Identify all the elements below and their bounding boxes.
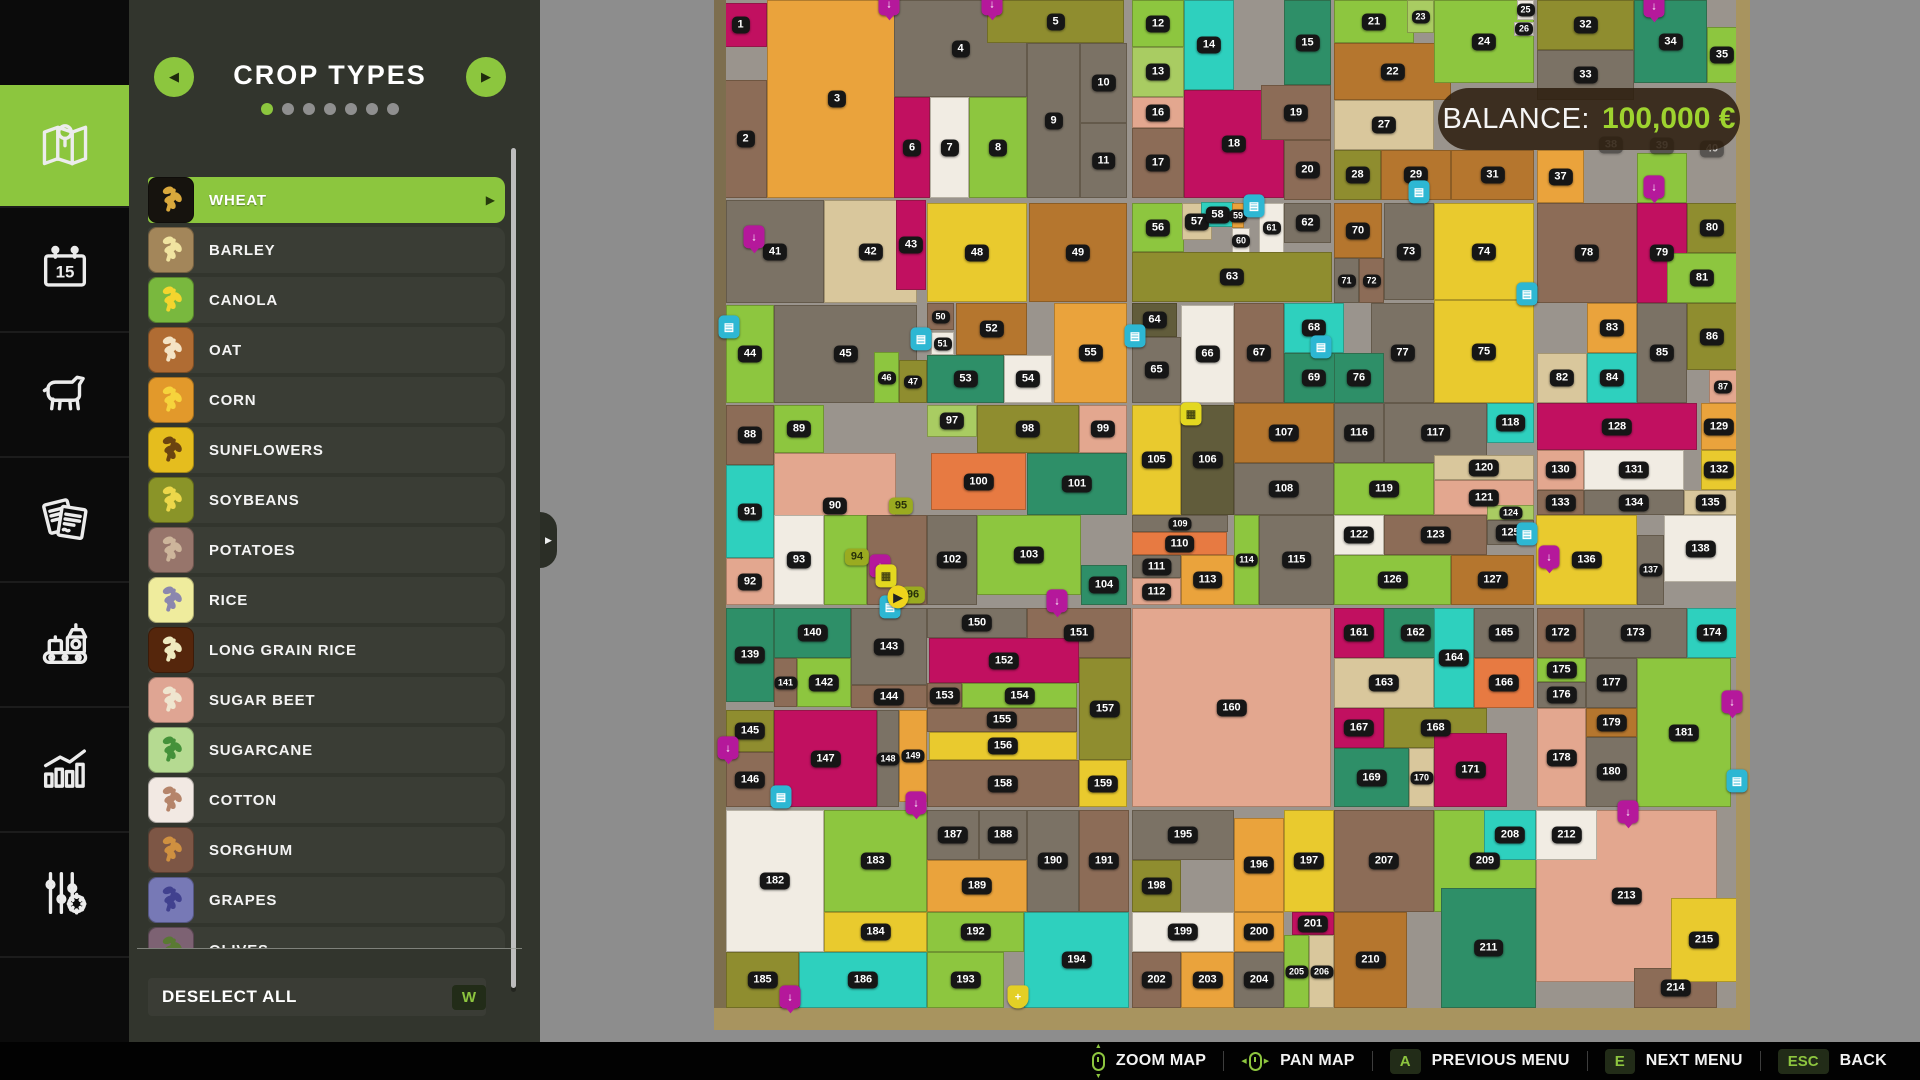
- seed-point-icon[interactable]: ↓: [744, 225, 765, 248]
- page-dot-2: [282, 103, 294, 115]
- field-number-badge: 134: [1619, 494, 1649, 511]
- field-number-badge: 147: [810, 750, 840, 767]
- field-number-badge: 62: [1295, 215, 1319, 232]
- nav-tab-statistics[interactable]: [0, 710, 129, 833]
- field-number-badge: 93: [787, 552, 811, 569]
- crop-row-sugar-beet[interactable]: SUGAR BEET: [148, 677, 505, 723]
- field-number-badge: 189: [962, 878, 992, 895]
- field-number-badge: 124: [1499, 506, 1522, 519]
- production-point-icon[interactable]: ▤: [1311, 335, 1332, 358]
- crop-icon: [148, 627, 194, 673]
- field-number-badge: 195: [1168, 827, 1198, 844]
- field-number-badge: 104: [1089, 577, 1119, 594]
- crop-list: WHEAT▶BARLEYCANOLAOATCORNSUNFLOWERSSOYBE…: [148, 177, 505, 948]
- production-point-icon[interactable]: ▤: [1125, 324, 1146, 347]
- map-icon: [36, 114, 94, 177]
- field-number-badge: 99: [1091, 421, 1115, 438]
- field-number-badge: 213: [1611, 888, 1641, 905]
- prev-page-button[interactable]: ◀: [154, 57, 194, 97]
- field-number-badge: 23: [1411, 10, 1429, 23]
- field-number-badge: 153: [929, 687, 959, 704]
- nav-tab-production[interactable]: [0, 585, 129, 708]
- field-number-badge: 35: [1710, 47, 1734, 64]
- field-number-badge: 79: [1650, 245, 1674, 262]
- field-number-badge: 167: [1344, 720, 1374, 737]
- page-dot-6: [366, 103, 378, 115]
- crop-icon: [148, 527, 194, 573]
- production-point-icon[interactable]: ▤: [911, 327, 932, 350]
- field-number-badge: 184: [860, 924, 890, 941]
- field-number-badge: 111: [1142, 558, 1171, 575]
- field-number-badge: 166: [1489, 675, 1519, 692]
- hotkey-label: PAN MAP: [1280, 1052, 1355, 1070]
- map-edge-right: [1736, 0, 1750, 1030]
- field-number-badge: 201: [1298, 915, 1328, 932]
- field-number-badge: 44: [738, 346, 762, 363]
- hotkey-back[interactable]: ESCBACK: [1761, 1049, 1904, 1074]
- field-number-badge: 181: [1669, 724, 1699, 741]
- field-number-badge: 27: [1372, 117, 1396, 134]
- deselect-key-badge: W: [452, 985, 486, 1010]
- field-number-badge: 186: [848, 972, 878, 989]
- field-number-badge: 74: [1472, 243, 1496, 260]
- production-point-icon[interactable]: ▤: [1409, 180, 1430, 203]
- map-edge-bottom: [714, 1008, 1750, 1030]
- page-dot-7: [387, 103, 399, 115]
- nav-tab-animals[interactable]: [0, 335, 129, 458]
- balance-value: 100,000 €: [1602, 102, 1735, 136]
- crop-label: WHEAT: [194, 192, 267, 209]
- field-number-badge: 120: [1469, 459, 1499, 476]
- field-number-badge: 137: [1639, 564, 1662, 577]
- field-number-badge: 116: [1344, 425, 1374, 442]
- field-number-badge-owned: 95: [889, 498, 913, 515]
- field-number-badge: 135: [1695, 494, 1725, 511]
- panel-divider: [137, 948, 522, 949]
- field-number-badge: 67: [1247, 345, 1271, 362]
- field-number-badge: 52: [979, 321, 1003, 338]
- field-number-badge: 140: [797, 625, 827, 642]
- crop-label: BARLEY: [194, 242, 275, 259]
- field-number-badge: 103: [1014, 547, 1044, 564]
- key-badge-a: A: [1390, 1049, 1421, 1074]
- field-number-badge: 53: [953, 371, 977, 388]
- field-number-badge: 1: [731, 17, 749, 34]
- field-number-badge: 123: [1420, 527, 1450, 544]
- hotkey-label: PREVIOUS MENU: [1432, 1052, 1570, 1070]
- field-number-badge: 25: [1516, 4, 1534, 17]
- field-number-badge: 156: [988, 738, 1018, 755]
- hotkey-label: NEXT MENU: [1646, 1052, 1743, 1070]
- field-number-badge: 6: [903, 139, 921, 156]
- field-number-badge: 92: [738, 573, 762, 590]
- crop-icon: [148, 827, 194, 873]
- page-dot-1: [261, 103, 273, 115]
- field-number-badge: 152: [989, 652, 1019, 669]
- field-number-badge: 174: [1697, 625, 1727, 642]
- field-number-badge: 196: [1244, 857, 1274, 874]
- field-number-badge: 32: [1573, 17, 1597, 34]
- field-number-badge: 141: [774, 676, 797, 689]
- keybind-icon[interactable]: ▦: [876, 564, 897, 587]
- field-number-badge: 122: [1344, 527, 1374, 544]
- field-number-badge: 49: [1066, 244, 1090, 261]
- field-number-badge: 4: [951, 40, 969, 57]
- crop-row-rice[interactable]: RICE: [148, 577, 505, 623]
- crop-row-barley[interactable]: BARLEY: [148, 227, 505, 273]
- seed-point-icon[interactable]: ↓: [1618, 800, 1639, 823]
- bottom-hotkey-bar: ▲▼ZOOM MAP◀▶PAN MAPAPREVIOUS MENUENEXT M…: [0, 1042, 1920, 1080]
- field-number-badge: 144: [874, 688, 904, 705]
- hotkey-pan-map[interactable]: ◀▶PAN MAP: [1224, 1052, 1371, 1071]
- field-number-badge: 48: [965, 244, 989, 261]
- next-page-button[interactable]: ▶: [466, 57, 506, 97]
- crop-row-oat[interactable]: OAT: [148, 327, 505, 373]
- field-number-badge: 14: [1197, 37, 1221, 54]
- seed-point-icon[interactable]: ↓: [780, 985, 801, 1008]
- field-number-badge: 9: [1044, 112, 1062, 129]
- field-number-badge: 215: [1689, 932, 1719, 949]
- field-number-badge: 82: [1550, 370, 1574, 387]
- field-number-badge: 73: [1397, 243, 1421, 260]
- crop-icon: [148, 327, 194, 373]
- panel-collapse-button[interactable]: ▶: [540, 512, 557, 568]
- seed-point-icon[interactable]: ↓: [1722, 690, 1743, 713]
- deselect-all-label: DESELECT ALL: [162, 987, 297, 1007]
- crop-row-potatoes[interactable]: POTATOES: [148, 527, 505, 573]
- field-number-badge: 54: [1016, 371, 1040, 388]
- field-number-badge: 162: [1400, 625, 1430, 642]
- hotkey-next-menu[interactable]: ENEXT MENU: [1588, 1049, 1760, 1074]
- field-number-badge: 193: [950, 972, 980, 989]
- crop-row-olives[interactable]: OLIVES: [148, 927, 505, 948]
- crop-icon: [148, 777, 194, 823]
- field-number-badge: 110: [1165, 535, 1195, 552]
- field-number-badge: 143: [874, 638, 904, 655]
- field-number-badge: 149: [901, 750, 924, 763]
- hotkey-previous-menu[interactable]: APREVIOUS MENU: [1373, 1049, 1587, 1074]
- field-number-badge: 19: [1284, 104, 1308, 121]
- field-number-badge: 108: [1269, 481, 1299, 498]
- field-number-badge: 118: [1496, 415, 1526, 432]
- production-point-icon[interactable]: ▤: [1517, 282, 1538, 305]
- nav-tab-contracts[interactable]: [0, 460, 129, 583]
- field-number-badge: 151: [1064, 625, 1094, 642]
- field-number-badge: 7: [940, 139, 958, 156]
- field-number-badge: 210: [1355, 952, 1385, 969]
- field-number-badge: 209: [1470, 853, 1500, 870]
- field-number-badge: 22: [1380, 63, 1404, 80]
- crop-icon: [148, 277, 194, 323]
- field-number-badge: 107: [1269, 425, 1299, 442]
- field-number-badge: 177: [1596, 675, 1626, 692]
- seed-point-icon[interactable]: ↓: [1539, 545, 1560, 568]
- field-number-badge: 114: [1235, 554, 1258, 567]
- field-number-badge: 136: [1571, 552, 1601, 569]
- field-number-badge: 78: [1575, 245, 1599, 262]
- field-number-badge: 11: [1092, 152, 1116, 169]
- field-number-badge: 72: [1362, 274, 1380, 287]
- crop-label: CORN: [194, 392, 256, 409]
- crop-types-panel: ◀ CROP TYPES ▶ WHEAT▶BARLEYCANOLAOATCORN…: [129, 0, 540, 1042]
- crop-row-canola[interactable]: CANOLA: [148, 277, 505, 323]
- field-number-badge: 83: [1600, 320, 1624, 337]
- field-number-badge: 109: [1168, 517, 1191, 530]
- field-number-badge: 202: [1141, 972, 1171, 989]
- production-point-icon[interactable]: ▤: [1517, 522, 1538, 545]
- crop-row-sunflowers[interactable]: SUNFLOWERS: [148, 427, 505, 473]
- crop-label: COTTON: [194, 792, 277, 809]
- field-number-badge: 13: [1146, 64, 1170, 81]
- page-dot-3: [303, 103, 315, 115]
- field-number-badge: 199: [1168, 924, 1198, 941]
- field-number-badge: 20: [1295, 162, 1319, 179]
- field-number-badge: 81: [1690, 270, 1714, 287]
- field-number-badge: 56: [1146, 219, 1170, 236]
- field-number-badge: 69: [1302, 370, 1326, 387]
- field-number-badge: 145: [735, 723, 765, 740]
- field-number-badge: 64: [1142, 312, 1166, 329]
- field-number-badge: 80: [1700, 220, 1724, 237]
- stats-icon: [36, 739, 94, 802]
- field-number-badge: 65: [1144, 362, 1168, 379]
- field-number-badge: 198: [1141, 878, 1171, 895]
- field-number-badge: 98: [1016, 421, 1040, 438]
- field-number-badge: 190: [1038, 853, 1068, 870]
- contracts-icon: [36, 489, 94, 552]
- page-dot-5: [345, 103, 357, 115]
- field-number-badge: 182: [760, 873, 790, 890]
- crop-row-wheat[interactable]: WHEAT▶: [148, 177, 505, 223]
- crop-icon: [148, 927, 194, 948]
- nav-tab-calendar[interactable]: 15: [0, 210, 129, 333]
- field-number-badge: 165: [1489, 625, 1519, 642]
- player-marker-icon[interactable]: ▶: [888, 585, 909, 608]
- production-point-icon[interactable]: ▤: [1727, 769, 1748, 792]
- field-number-badge: 127: [1477, 572, 1507, 589]
- keybind-icon[interactable]: ▦: [1181, 402, 1202, 425]
- field-number-badge: 205: [1285, 965, 1308, 978]
- field-number-badge: 128: [1602, 418, 1632, 435]
- mouse-pan-icon: ◀▶: [1241, 1052, 1269, 1071]
- seed-point-icon[interactable]: ↓: [718, 736, 739, 759]
- calendar-icon: 15: [36, 239, 94, 302]
- production-icon: [36, 614, 94, 677]
- field-number-badge: 180: [1596, 764, 1626, 781]
- nav-tab-settings[interactable]: [0, 835, 129, 958]
- hotkey-label: ZOOM MAP: [1116, 1052, 1206, 1070]
- field-number-badge: 131: [1619, 462, 1649, 479]
- field-number-badge: 90: [823, 497, 847, 514]
- seed-point-icon[interactable]: ↓: [982, 0, 1003, 15]
- field-number-badge: 176: [1546, 687, 1576, 704]
- hotkey-zoom-map[interactable]: ▲▼ZOOM MAP: [1075, 1043, 1223, 1080]
- seed-point-icon[interactable]: ↓: [906, 791, 927, 814]
- field-number-badge: 115: [1282, 552, 1312, 569]
- crop-icon: [148, 177, 194, 223]
- field-number-badge: 63: [1220, 269, 1244, 286]
- field-number-badge: 183: [860, 853, 890, 870]
- crop-label: SUNFLOWERS: [194, 442, 324, 459]
- field-number-badge: 50: [931, 310, 949, 323]
- field-number-badge: 86: [1700, 328, 1724, 345]
- field-number-badge: 117: [1421, 425, 1451, 442]
- field-number-badge: 187: [938, 827, 968, 844]
- crop-row-corn[interactable]: CORN: [148, 377, 505, 423]
- field-number-badge: 33: [1573, 67, 1597, 84]
- field-number-badge: 16: [1146, 104, 1170, 121]
- field-number-badge: 192: [960, 924, 990, 941]
- field-number-badge: 175: [1546, 662, 1576, 679]
- field-number-badge: 42: [858, 243, 882, 260]
- field-number-badge: 75: [1472, 343, 1496, 360]
- field-number-badge: 160: [1216, 699, 1246, 716]
- field-number-badge: 8: [989, 139, 1007, 156]
- deselect-all-button[interactable]: DESELECT ALL W: [148, 978, 486, 1016]
- field-number-badge: 85: [1650, 345, 1674, 362]
- production-point-icon[interactable]: ▤: [771, 785, 792, 808]
- crop-label: CANOLA: [194, 292, 278, 309]
- field-number-badge: 203: [1192, 972, 1222, 989]
- mouse-zoom-icon: ▲▼: [1092, 1043, 1105, 1080]
- crop-row-long-grain-rice[interactable]: LONG GRAIN RICE: [148, 627, 505, 673]
- page-dots: [129, 103, 531, 115]
- field-number-badge: 200: [1244, 924, 1274, 941]
- field-number-badge: 47: [904, 375, 922, 388]
- seed-point-icon[interactable]: ↓: [1644, 175, 1665, 198]
- field-number-badge: 197: [1294, 853, 1324, 870]
- field-number-badge: 163: [1369, 675, 1399, 692]
- field-number-badge: 77: [1390, 345, 1414, 362]
- field-number-badge: 211: [1474, 940, 1504, 957]
- field-number-badge: 66: [1195, 346, 1219, 363]
- field-number-badge: 148: [876, 752, 899, 765]
- field-number-badge: 84: [1600, 370, 1624, 387]
- field-number-badge: 164: [1439, 650, 1469, 667]
- field-number-badge: 68: [1302, 320, 1326, 337]
- crop-row-grapes[interactable]: GRAPES: [148, 877, 505, 923]
- field-number-badge: 88: [738, 427, 762, 444]
- field-number-badge: 170: [1410, 771, 1433, 784]
- field-number-badge: 3: [828, 91, 846, 108]
- field-number-badge: 46: [877, 371, 895, 384]
- world-map[interactable]: 1234567891011121314151617181920212223242…: [714, 0, 1750, 1030]
- left-nav-bar: 15: [0, 0, 129, 1042]
- crop-icon: [148, 427, 194, 473]
- field-number-badge: 194: [1061, 952, 1091, 969]
- panel-title: CROP TYPES: [199, 60, 461, 91]
- field-number-badge: 178: [1546, 749, 1576, 766]
- shop-point-icon[interactable]: +: [1008, 985, 1029, 1008]
- crop-icon: [148, 677, 194, 723]
- field-number-badge: 130: [1545, 462, 1575, 479]
- seed-point-icon[interactable]: ↓: [879, 0, 900, 15]
- crop-icon: [148, 227, 194, 273]
- field-number-badge: 28: [1345, 167, 1369, 184]
- field-number-badge: 45: [833, 346, 857, 363]
- crop-label: SOYBEANS: [194, 492, 300, 509]
- field-number-badge: 121: [1469, 489, 1499, 506]
- crop-icon: [148, 377, 194, 423]
- field-number-badge: 43: [899, 237, 923, 254]
- crop-row-sorghum[interactable]: SORGHUM: [148, 827, 505, 873]
- crop-row-cotton[interactable]: COTTON: [148, 777, 505, 823]
- crop-label: SUGARCANE: [194, 742, 313, 759]
- field-number-badge: 126: [1377, 572, 1407, 589]
- field-number-badge: 207: [1369, 853, 1399, 870]
- field-number-badge: 102: [937, 552, 967, 569]
- crop-label: OAT: [194, 342, 242, 359]
- selected-chevron-icon: ▶: [486, 193, 495, 207]
- page-dot-4: [324, 103, 336, 115]
- field-number-badge: 58: [1205, 206, 1229, 223]
- field-number-badge: 139: [735, 647, 765, 664]
- field-number-badge: 179: [1596, 714, 1626, 731]
- field-number-badge: 142: [809, 674, 839, 691]
- seed-point-icon[interactable]: ↓: [1644, 0, 1665, 17]
- crop-icon: [148, 877, 194, 923]
- field-number-badge: 71: [1337, 274, 1355, 287]
- field-number-badge: 172: [1545, 625, 1575, 642]
- production-point-icon[interactable]: ▤: [1244, 194, 1265, 217]
- field-number-badge: 12: [1146, 15, 1170, 32]
- crop-row-sugarcane[interactable]: SUGARCANE: [148, 727, 505, 773]
- field-number-badge: 155: [987, 712, 1017, 729]
- crop-icon: [148, 477, 194, 523]
- field-number-badge: 212: [1551, 827, 1581, 844]
- field-number-badge: 18: [1222, 136, 1246, 153]
- key-badge-esc: ESC: [1778, 1049, 1829, 1074]
- field-number-badge: 154: [1004, 687, 1034, 704]
- nav-tab-map[interactable]: [0, 85, 129, 208]
- balance-pill: BALANCE: 100,000 €: [1438, 88, 1740, 150]
- field-number-badge: 21: [1362, 13, 1386, 30]
- field-number-badge: 159: [1088, 775, 1118, 792]
- scrollbar-thumb[interactable]: [511, 148, 516, 988]
- field-number-badge: 171: [1455, 762, 1485, 779]
- field-number-badge: 173: [1620, 625, 1650, 642]
- field-number-badge-owned: 94: [845, 549, 869, 566]
- svg-text:15: 15: [55, 263, 74, 282]
- production-point-icon[interactable]: ▤: [719, 315, 740, 338]
- field-number-badge: 55: [1078, 345, 1102, 362]
- field-number-badge: 60: [1232, 234, 1250, 247]
- field-number-badge: 129: [1704, 418, 1734, 435]
- field-number-badge: 76: [1347, 370, 1371, 387]
- seed-point-icon[interactable]: ↓: [1047, 589, 1068, 612]
- field-number-badge: 26: [1515, 23, 1533, 36]
- map-edge-left: [714, 0, 726, 1030]
- crop-row-soybeans[interactable]: SOYBEANS: [148, 477, 505, 523]
- balance-label: BALANCE:: [1443, 103, 1590, 136]
- field-number-badge: 5: [1046, 13, 1064, 30]
- field-number-badge: 146: [735, 771, 765, 788]
- field-number-badge: 24: [1472, 33, 1496, 50]
- field-number-badge: 132: [1704, 462, 1734, 479]
- field-number-badge: 87: [1714, 380, 1732, 393]
- crop-label: LONG GRAIN RICE: [194, 642, 357, 659]
- field-number-badge: 15: [1295, 34, 1319, 51]
- field-number-badge: 41: [763, 243, 787, 260]
- field-number-badge: 51: [933, 337, 951, 350]
- field-number-badge: 161: [1344, 625, 1374, 642]
- field-number-badge: 208: [1495, 827, 1525, 844]
- field-number-badge: 206: [1310, 965, 1333, 978]
- field-number-badge: 168: [1420, 720, 1450, 737]
- field-number-badge: 138: [1685, 540, 1715, 557]
- field-number-badge: 91: [738, 503, 762, 520]
- field-number-badge: 61: [1262, 222, 1280, 235]
